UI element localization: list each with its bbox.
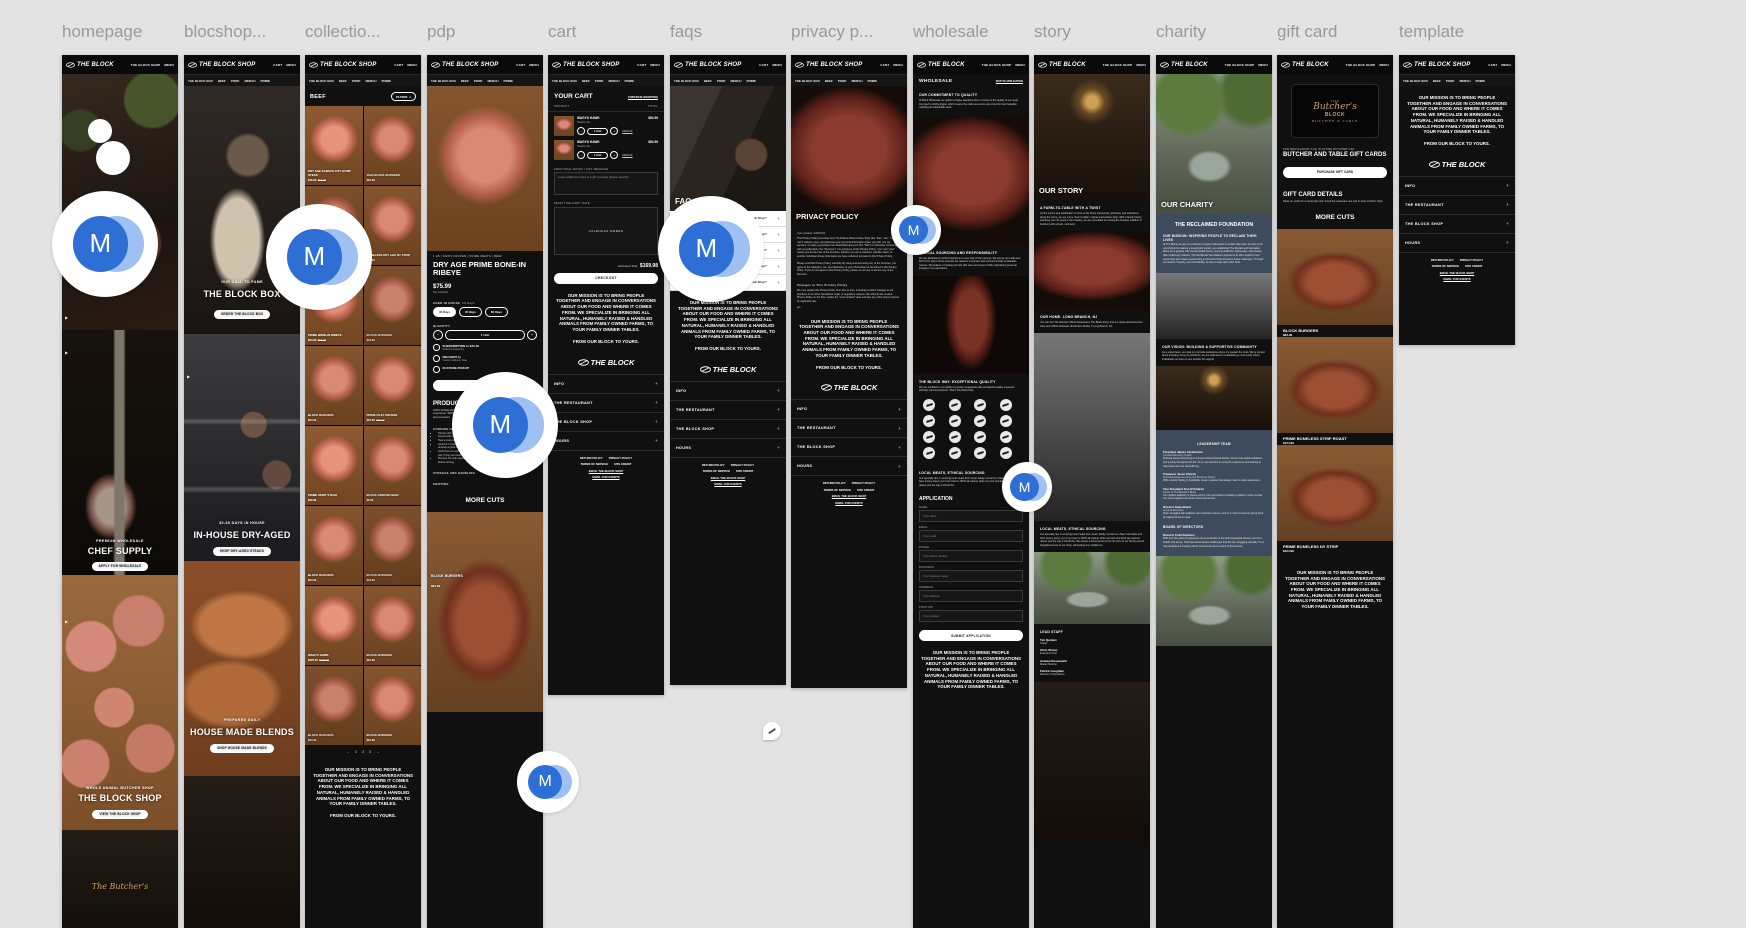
- more-cuts-product[interactable]: BLOCK BURGERS $84.99: [1277, 229, 1393, 337]
- pagination-item[interactable]: 1: [355, 750, 357, 754]
- footer-accordion-row[interactable]: INFO+: [1399, 176, 1515, 195]
- hero-photo-chef-supply: ▶ PREMIUM WHOLESALE CHEF SUPPLY APPLY FO…: [62, 330, 178, 575]
- product-name: BLOCK GROUND BEEF: [367, 494, 420, 497]
- nav-item[interactable]: PRIME: [625, 79, 635, 83]
- charity-hero-photo: OUR CHARITY: [1156, 74, 1272, 214]
- partner-logo: [949, 447, 961, 459]
- age-option-pill[interactable]: 30 Days: [433, 307, 456, 317]
- nav-item[interactable]: MERCH: [245, 79, 256, 83]
- footer-accordion-row[interactable]: THE BLOCK SHOP+: [791, 437, 907, 456]
- header-link[interactable]: MENU: [1136, 63, 1146, 67]
- text-input[interactable]: Your phone number: [919, 550, 1023, 562]
- avatar-initial: M: [899, 216, 928, 245]
- text-input[interactable]: Your address: [919, 590, 1023, 602]
- minus-button[interactable]: −: [433, 330, 443, 340]
- frame-collection: THE BLOCK SHOP CARTMENU THE BLOCK BOXBEE…: [305, 55, 421, 928]
- minus-button[interactable]: −: [577, 151, 585, 159]
- nav-item[interactable]: MERCH: [488, 79, 499, 83]
- block-shop-logo[interactable]: THE BLOCK SHOP: [674, 62, 741, 68]
- product-meta: 1 LB | SHIPS FROZEN | PRIME MEATS | BEEF: [433, 255, 537, 258]
- footer-link[interactable]: PRIVACY POLICY: [609, 456, 632, 460]
- header-link[interactable]: THE BLOCK SHOP: [1225, 63, 1255, 67]
- partner-logo: [949, 399, 961, 411]
- product-card[interactable]: PRIME SKIRT STEAK $29.99: [305, 426, 363, 505]
- product-price: $75.99: [433, 284, 537, 290]
- product-price: $52.99$64.99: [367, 419, 385, 422]
- plus-icon: +: [655, 381, 658, 386]
- text-input[interactable]: Your email: [919, 530, 1023, 542]
- header-link[interactable]: CART: [759, 63, 768, 67]
- product-card[interactable]: BLOCK GROUND BEEF $6.99: [364, 426, 422, 505]
- more-cuts-heading: MORE CUTS: [427, 487, 543, 512]
- story-photo-chef: [1034, 333, 1150, 521]
- frame-label[interactable]: privacy p...: [791, 22, 873, 42]
- footer-email-link[interactable]: EMAIL FOR EVENTS: [552, 475, 660, 479]
- product-name: BLOCK BURGERS: [308, 574, 361, 577]
- section-text: We are dedicated to ethical practices in…: [919, 257, 1023, 271]
- story-photo-bottom: [1034, 682, 1150, 842]
- plus-icon: +: [777, 264, 780, 269]
- plus-icon: +: [655, 419, 658, 424]
- footer-accordion-row[interactable]: THE RESTAURANT+: [670, 400, 786, 419]
- nav-item[interactable]: THE BLOCK BOX: [1403, 79, 1428, 83]
- footer-link[interactable]: SITE CREDIT: [614, 462, 631, 466]
- nav-item[interactable]: THE BLOCK BOX: [552, 79, 577, 83]
- product-price: $29.99: [308, 499, 318, 502]
- shop-house-blends-button[interactable]: SHOP HOUSE MADE BLENDS: [210, 744, 274, 753]
- site-header: THE BLOCK SHOP CARTMENU: [1399, 55, 1515, 74]
- product-price: $6.99: [367, 499, 375, 502]
- nav-item[interactable]: THE BLOCK BOX: [431, 79, 456, 83]
- frame-label[interactable]: template: [1399, 22, 1464, 42]
- filters-label: FILTERS: [396, 95, 407, 99]
- block-logo-icon: [821, 384, 832, 391]
- product-price: $24.99$69.99: [308, 339, 326, 342]
- nav-item[interactable]: PORK: [717, 79, 726, 83]
- block-logo-icon: [700, 366, 711, 373]
- more-cuts-product[interactable]: PRIME BONELESS NY STRIP $104.99: [1277, 445, 1393, 553]
- header-link[interactable]: CART: [394, 63, 403, 67]
- quantity-value: 1 Unit: [587, 128, 608, 135]
- block-logo-icon: [1160, 62, 1169, 68]
- footer-link[interactable]: PRIVACY POLICY: [731, 463, 754, 467]
- nav-item[interactable]: MERCH: [852, 79, 863, 83]
- logo-text: THE BLOCK: [1292, 62, 1329, 68]
- carousel-arrow[interactable]: ▶: [65, 315, 68, 320]
- product-name: BLOCK BURGERS: [367, 734, 420, 737]
- product-card[interactable]: PRIME FILET MIGNON $52.99$64.99: [364, 346, 422, 425]
- collaborator-avatar[interactable]: M: [891, 205, 941, 255]
- logo-text: THE BLOCK SHOP: [806, 62, 862, 68]
- column-total: TOTAL: [648, 105, 658, 108]
- field-label: BUSINESS: [919, 566, 1023, 569]
- carousel-arrow[interactable]: ▶: [65, 619, 68, 624]
- nav-item[interactable]: MERCH: [1460, 79, 1471, 83]
- text-input[interactable]: Your business name: [919, 570, 1023, 582]
- avatar-initial: M: [679, 221, 735, 277]
- footer-accordion-row[interactable]: THE RESTAURANT+: [548, 393, 664, 412]
- footer-accordion-row[interactable]: HOURS+: [670, 438, 786, 457]
- footer-email-link[interactable]: EMAIL THE BLOCK SHOP: [795, 494, 903, 498]
- footer-email-link[interactable]: EMAIL FOR EVENTS: [674, 482, 782, 486]
- avatar-initial: M: [287, 229, 343, 285]
- nav-item[interactable]: BEEF: [1433, 79, 1441, 83]
- product-card[interactable]: BLOCK BURGERS $64.99: [305, 346, 363, 425]
- nav-item[interactable]: BEEF: [339, 79, 347, 83]
- nav-item[interactable]: THE BLOCK BOX: [795, 79, 820, 83]
- nav-item[interactable]: MERCH: [731, 79, 742, 83]
- column-product: PRODUCT: [554, 105, 570, 108]
- product-card[interactable]: BLOCK BURGERS $64.99: [364, 506, 422, 585]
- leadership-panel: LEADERSHIP TEAM President James Cardamon…: [1156, 430, 1272, 556]
- partner-logo: [1000, 431, 1012, 443]
- pagination-item[interactable]: ←: [346, 750, 350, 754]
- more-cuts-product[interactable]: PRIME BONELESS STRIP ROAST $104.99: [1277, 337, 1393, 445]
- block-logo[interactable]: THE BLOCK: [1038, 62, 1086, 68]
- calendar-embed[interactable]: CALENDAR EMBED: [554, 207, 658, 255]
- nav-item[interactable]: THE BLOCK BOX: [188, 79, 213, 83]
- frame-label[interactable]: story: [1034, 22, 1071, 42]
- nav-item[interactable]: PORK: [231, 79, 240, 83]
- block-logo-icon: [1038, 62, 1047, 68]
- product-name: BLOCK BURGERS: [431, 574, 463, 578]
- section-text: You can find The Butcher's Block Restaur…: [1040, 321, 1144, 328]
- header-link[interactable]: THE BLOCK SHOP: [1103, 63, 1133, 67]
- footer-link[interactable]: RETURN POLICY: [580, 456, 603, 460]
- card-subtitle: BUTCHER & TABLE: [1312, 119, 1358, 123]
- privacy-paragraph: This Privacy Policy describes how The Bu…: [797, 237, 901, 258]
- frame-label[interactable]: faqs: [670, 22, 702, 42]
- header-link[interactable]: THE BLOCK SHOP: [1346, 63, 1376, 67]
- product-card[interactable]: BLOCK BURGERS $64.99: [364, 586, 422, 665]
- block-shop-logo[interactable]: THE BLOCK SHOP: [309, 62, 376, 68]
- skip-to-application-link[interactable]: SKIP TO APPLICATION: [996, 80, 1023, 83]
- staff-role: Owner: [1040, 642, 1144, 645]
- product-card[interactable]: BLOCK BURGERS $64.99: [364, 666, 422, 745]
- view-block-shop-button[interactable]: VIEW THE BLOCK SHOP: [92, 810, 147, 819]
- partner-logo: [923, 399, 935, 411]
- footer-accordion-row[interactable]: HOURS+: [1399, 233, 1515, 252]
- block-shop-logo[interactable]: THE BLOCK SHOP: [552, 62, 619, 68]
- purchase-option[interactable]: DELIVERY toCustom delivery date: [433, 355, 537, 362]
- collaborator-avatar[interactable]: M: [517, 751, 579, 813]
- logo-text: THE BLOCK: [928, 62, 965, 68]
- plus-icon: +: [1506, 183, 1509, 188]
- header-link[interactable]: CART: [1488, 63, 1497, 67]
- gift-details-text: Place an order for a virtual gift card. …: [1283, 200, 1387, 204]
- footer-link[interactable]: SITE CREDIT: [1465, 264, 1482, 268]
- header-link[interactable]: MENU: [1015, 63, 1025, 67]
- frame-label[interactable]: homepage: [62, 22, 142, 42]
- mission-tagline: FROM OUR BLOCK TO YOURS.: [556, 339, 656, 345]
- notes-textarea[interactable]: Leave additional notes or a gift message…: [554, 172, 658, 195]
- plus-icon: +: [655, 400, 658, 405]
- collection-title: BEEF: [310, 94, 326, 100]
- nav-item[interactable]: PORK: [838, 79, 847, 83]
- section-text: Our specialty lies in sourcing local mea…: [1040, 533, 1144, 547]
- nav-item[interactable]: PRIME: [1476, 79, 1486, 83]
- frame-label[interactable]: cart: [548, 22, 576, 42]
- more-cuts-photo[interactable]: BLOCK BURGERS $84.99: [427, 512, 543, 712]
- header-link[interactable]: MENU: [286, 63, 296, 67]
- age-option-pill[interactable]: 45 Days: [459, 307, 482, 317]
- footer-link[interactable]: TERMS OF SERVICE: [581, 462, 608, 466]
- nav-item[interactable]: MERCH: [609, 79, 620, 83]
- nav-item[interactable]: PORK: [1446, 79, 1455, 83]
- mission-block: OUR MISSION IS TO BRING PEOPLE TOGETHER …: [791, 310, 907, 375]
- design-canvas: homepageblocshop...collectio...pdpcartfa…: [0, 0, 1746, 928]
- leader-entry: Treasurer Jesse Church Serial Entreprene…: [1163, 472, 1265, 483]
- text-input[interactable]: Your position: [919, 610, 1023, 622]
- footer-link[interactable]: TERMS OF SERVICE: [703, 469, 730, 473]
- block-logo[interactable]: THE BLOCK: [1281, 62, 1329, 68]
- header-link[interactable]: MENU: [893, 63, 903, 67]
- block-logo[interactable]: THE BLOCK: [66, 62, 114, 68]
- header-link[interactable]: MENU: [529, 63, 539, 67]
- story-hero-photo: OUR STORY: [1034, 74, 1150, 200]
- lead-staff-heading: LEAD STAFF: [1040, 630, 1144, 634]
- mission-text: OUR MISSION IS TO BRING PEOPLE TOGETHER …: [556, 293, 656, 333]
- staff-entry: Tim Quinlan Owner: [1040, 638, 1144, 645]
- header-link[interactable]: MENU: [407, 63, 417, 67]
- product-card[interactable]: BONELESS DRY AGE NY STRIP $52.99: [364, 186, 422, 265]
- footer-accordion-row[interactable]: HOURS+: [548, 431, 664, 450]
- purchase-option[interactable]: SUBSCRIPTION to $72.19Delivery frequency: [433, 344, 537, 351]
- header-link[interactable]: MENU: [1258, 63, 1268, 67]
- cart-item-name: WAGYU HAWK: [577, 140, 645, 144]
- product-card[interactable]: 10LB BLOCK BURGERS $84.99: [364, 106, 422, 185]
- product-card[interactable]: DRY AGE KANSAS CITY STRIP STEAK $46.99$6…: [305, 106, 363, 185]
- nav-item[interactable]: THE BLOCK BOX: [309, 79, 334, 83]
- cart-item-thumbnail[interactable]: [554, 140, 574, 160]
- frame-faqs: THE BLOCK SHOP CARTMENU THE BLOCK BOXBEE…: [670, 55, 786, 685]
- block-shop-logo[interactable]: THE BLOCK SHOP: [1403, 62, 1470, 68]
- footer-accordion-row[interactable]: INFO+: [548, 374, 664, 393]
- header-link[interactable]: CART: [880, 63, 889, 67]
- frame-template: THE BLOCK SHOP CARTMENU THE BLOCK BOXBEE…: [1399, 55, 1515, 345]
- footer-legal: RETURN POLICYPRIVACY POLICY TERMS OF SER…: [548, 450, 664, 488]
- cart-item-price: $84.99: [648, 116, 658, 136]
- nav-item[interactable]: MERCH: [366, 79, 377, 83]
- cart-item-thumbnail[interactable]: [554, 116, 574, 136]
- product-card[interactable]: BLOCK BURGERS $64.99: [305, 666, 363, 745]
- plus-icon: +: [898, 426, 901, 431]
- footer-link[interactable]: SITE CREDIT: [857, 488, 874, 492]
- nav-item[interactable]: THE BLOCK BOX: [674, 79, 699, 83]
- block-logo[interactable]: THE BLOCK: [1160, 62, 1208, 68]
- footer-link[interactable]: RETURN POLICY: [823, 481, 846, 485]
- carousel-arrow[interactable]: ▶: [65, 350, 68, 355]
- nav-item[interactable]: PORK: [352, 79, 361, 83]
- mission-block: OUR MISSION IS TO BRING PEOPLE TOGETHER …: [1399, 86, 1515, 151]
- product-card[interactable]: BLOCK BURGERS $64.99: [364, 266, 422, 345]
- footer-accordion-row[interactable]: INFO+: [670, 381, 786, 400]
- product-price: $84.99: [367, 179, 377, 182]
- nav-item[interactable]: PRIME: [504, 79, 514, 83]
- plus-button[interactable]: +: [610, 151, 618, 159]
- nav-item[interactable]: BEEF: [825, 79, 833, 83]
- block-shop-logo[interactable]: THE BLOCK SHOP: [431, 62, 498, 68]
- story-photo-patio: [1034, 552, 1150, 624]
- nav-item[interactable]: PRIME: [261, 79, 271, 83]
- plus-button[interactable]: +: [527, 330, 537, 340]
- product-card[interactable]: BLOCK BURGERS $64.99: [305, 506, 363, 585]
- header-link[interactable]: CART: [516, 63, 525, 67]
- form-field: ADDRESS Your address: [913, 586, 1029, 602]
- site-header: THE BLOCK THE BLOCK SHOPMENU: [1034, 55, 1150, 74]
- footer-accordion-row[interactable]: THE RESTAURANT+: [1399, 195, 1515, 214]
- mission-block: OUR MISSION IS TO BRING PEOPLE TOGETHER …: [913, 641, 1029, 694]
- checkout-button[interactable]: CHECKOUT: [554, 273, 658, 284]
- footer-email-link[interactable]: EMAIL FOR EVENTS: [1403, 277, 1511, 281]
- header-link[interactable]: MENU: [772, 63, 782, 67]
- staff-role: Executive Chef: [1040, 652, 1144, 655]
- footer-email-link[interactable]: EMAIL THE BLOCK SHOP: [674, 476, 782, 480]
- nav-item[interactable]: BEEF: [704, 79, 712, 83]
- staff-role: Master Butcher: [1040, 663, 1144, 666]
- continue-shopping-link[interactable]: CONTINUE SHOPPING: [628, 95, 658, 99]
- footer-email-link[interactable]: EMAIL FOR EVENTS: [795, 501, 903, 505]
- header-link[interactable]: MENU: [1501, 63, 1511, 67]
- avatar-initial: M: [473, 397, 529, 453]
- collaborator-avatar[interactable]: M: [452, 372, 558, 478]
- mission-tagline: FROM OUR BLOCK TO YOURS.: [678, 346, 778, 352]
- plus-icon: +: [777, 232, 780, 237]
- product-price: $225.00$275.00: [308, 659, 329, 662]
- block-logo-icon: [431, 62, 440, 68]
- remove-link[interactable]: REMOVE: [622, 130, 632, 133]
- category-nav: THE BLOCK BOXBEEFPORKMERCHPRIME: [548, 74, 664, 86]
- minus-button[interactable]: −: [577, 127, 585, 135]
- footer-link[interactable]: RETURN POLICY: [702, 463, 725, 467]
- section-heading: ETHICAL SOURCING AND RESPONSIBILITY: [919, 251, 1023, 255]
- footer-legal: RETURN POLICYPRIVACY POLICY TERMS OF SER…: [791, 475, 907, 513]
- frame-label[interactable]: pdp: [427, 22, 455, 42]
- block-logo[interactable]: THE BLOCK: [917, 62, 965, 68]
- collaborator-avatar[interactable]: M: [1002, 462, 1052, 512]
- plus-icon: +: [777, 426, 780, 431]
- footer-link[interactable]: TERMS OF SERVICE: [824, 488, 851, 492]
- submit-application-button[interactable]: SUBMIT APPLICATION: [919, 630, 1023, 641]
- collaborator-avatar[interactable]: M: [658, 196, 764, 302]
- pagination-item[interactable]: →: [376, 750, 380, 754]
- hero-photo-dark: [184, 776, 300, 928]
- nav-item[interactable]: BEEF: [582, 79, 590, 83]
- text-input[interactable]: Your name: [919, 510, 1023, 522]
- purchase-option[interactable]: IN-STORE PICKUP: [433, 366, 537, 373]
- product-card[interactable]: WAGYU HAWK $225.00$275.00: [305, 586, 363, 665]
- frame-label[interactable]: blocshop...: [184, 22, 266, 42]
- section-heading: OUR COMMITMENT TO QUALITY: [919, 93, 1023, 97]
- footer-link[interactable]: TERMS OF SERVICE: [1432, 264, 1459, 268]
- nav-item[interactable]: BEEF: [218, 79, 226, 83]
- leader-bio: Tom battled addiction in silence and is …: [1163, 494, 1265, 501]
- product-name: BLOCK BURGERS: [308, 414, 361, 417]
- order-block-box-button[interactable]: ORDER THE BLOCK BOX: [214, 310, 271, 319]
- nav-item[interactable]: PRIME: [868, 79, 878, 83]
- pagination-item[interactable]: 3: [369, 750, 371, 754]
- frame-label[interactable]: charity: [1156, 22, 1206, 42]
- footer-accordion-row[interactable]: INFO+: [791, 399, 907, 418]
- privacy-subheading: Changes to This Privacy Policy: [797, 283, 901, 287]
- hero-photo-sausage: PREPARED DAILY HOUSE MADE BLENDS SHOP HO…: [184, 561, 300, 776]
- header-link[interactable]: THE BLOCK SHOP: [131, 63, 161, 67]
- partner-logo: [923, 415, 935, 427]
- footer-accordion-row[interactable]: THE BLOCK SHOP+: [548, 412, 664, 431]
- frame-label[interactable]: collectio...: [305, 22, 381, 42]
- mission-block: OUR MISSION IS TO BRING PEOPLE TOGETHER …: [305, 758, 421, 823]
- frame-label[interactable]: gift card: [1277, 22, 1337, 42]
- collaborator-avatar[interactable]: M: [52, 191, 158, 297]
- filters-button[interactable]: FILTERS ≡: [391, 92, 416, 101]
- nav-item[interactable]: PORK: [474, 79, 483, 83]
- plus-button[interactable]: +: [610, 127, 618, 135]
- header-link[interactable]: MENU: [164, 63, 174, 67]
- block-logo-icon: [66, 62, 75, 68]
- comment-pin[interactable]: [763, 722, 781, 740]
- footer-accordion-row[interactable]: THE RESTAURANT+: [791, 418, 907, 437]
- footer-link[interactable]: RETURN POLICY: [1431, 258, 1454, 262]
- quantity-value: 1 Unit: [587, 152, 608, 159]
- product-price: $46.99$64.99: [308, 179, 326, 182]
- plus-icon: +: [1506, 240, 1509, 245]
- purchase-gift-card-button[interactable]: PURCHASE GIFT CARD: [1283, 167, 1387, 178]
- nav-item[interactable]: PORK: [595, 79, 604, 83]
- pagination-item[interactable]: 2: [362, 750, 364, 754]
- footer-email-link[interactable]: EMAIL THE BLOCK SHOP: [1403, 271, 1511, 275]
- shop-dry-aged-button[interactable]: SHOP DRY-AGED STEAKS: [213, 547, 271, 556]
- product-name: BLOCK BURGERS: [367, 654, 420, 657]
- footer-email-link[interactable]: EMAIL THE BLOCK SHOP: [552, 469, 660, 473]
- nav-item[interactable]: PRIME: [747, 79, 757, 83]
- header-link[interactable]: CART: [273, 63, 282, 67]
- footer-link[interactable]: PRIVACY POLICY: [852, 481, 875, 485]
- cart-item-price: $84.99: [648, 140, 658, 160]
- nav-item[interactable]: BEEF: [461, 79, 469, 83]
- nav-item[interactable]: PRIME: [382, 79, 392, 83]
- shipping-heading[interactable]: SHIPPING: [433, 482, 537, 486]
- footer-accordion-row[interactable]: HOURS+: [791, 456, 907, 475]
- header-link[interactable]: THE BLOCK SHOP: [982, 63, 1012, 67]
- mission-text: OUR MISSION IS TO BRING PEOPLE TOGETHER …: [1407, 95, 1507, 135]
- plus-icon: +: [777, 248, 780, 253]
- collaborator-avatar[interactable]: M: [266, 204, 372, 310]
- frame-label[interactable]: wholesale: [913, 22, 989, 42]
- charity-photo-dinner: [1156, 366, 1272, 430]
- apply-wholesale-button[interactable]: APPLY FOR WHOLESALE: [92, 562, 149, 571]
- block-logo-icon: [188, 62, 197, 68]
- block-shop-logo[interactable]: THE BLOCK SHOP: [795, 62, 862, 68]
- logo-text: THE BLOCK SHOP: [563, 62, 619, 68]
- footer-link[interactable]: SITE CREDIT: [736, 469, 753, 473]
- privacy-page-title: PRIVACY POLICY: [796, 212, 859, 221]
- age-option-pill[interactable]: 60 Days: [485, 307, 508, 317]
- footer-link[interactable]: PRIVACY POLICY: [1460, 258, 1483, 262]
- product-photo: [1277, 229, 1393, 325]
- footer-accordion-row[interactable]: THE BLOCK SHOP+: [1399, 214, 1515, 233]
- remove-link[interactable]: REMOVE: [622, 154, 632, 157]
- gift-heading: BUTCHER AND TABLE GIFT CARDS: [1283, 152, 1387, 159]
- footer-accordion-row[interactable]: THE BLOCK SHOP+: [670, 419, 786, 438]
- site-header: THE BLOCK SHOP CARTMENU: [670, 55, 786, 74]
- carousel-arrow[interactable]: ▶: [187, 374, 190, 379]
- block-shop-logo[interactable]: THE BLOCK SHOP: [188, 62, 255, 68]
- mission-text: OUR MISSION IS TO BRING PEOPLE TOGETHER …: [799, 319, 899, 359]
- header-link[interactable]: MENU: [1379, 63, 1389, 67]
- header-link[interactable]: CART: [637, 63, 646, 67]
- product-name: BLOCK BURGERS: [367, 574, 420, 577]
- header-link[interactable]: MENU: [650, 63, 660, 67]
